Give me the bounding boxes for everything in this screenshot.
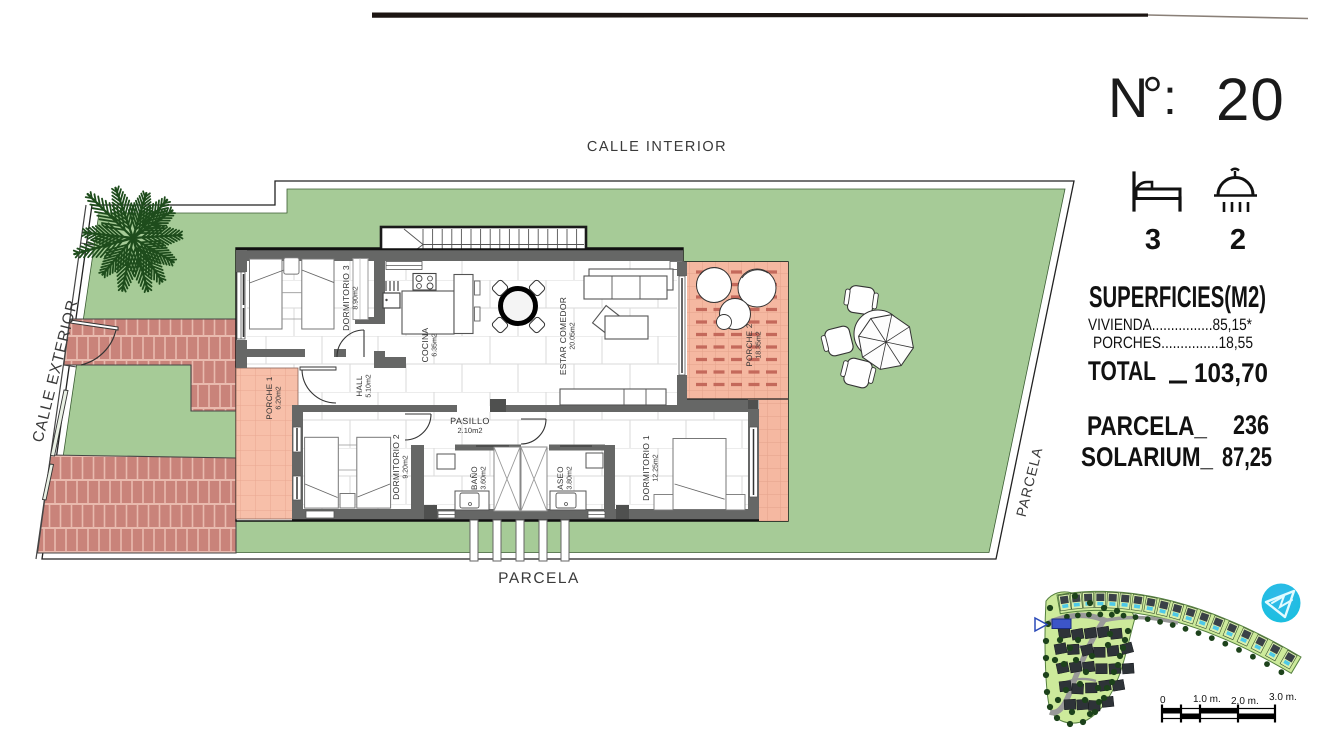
svg-text:236: 236 <box>1233 410 1269 440</box>
svg-text:CALLE INTERIOR: CALLE INTERIOR <box>587 139 727 155</box>
svg-text:3.0 m.: 3.0 m. <box>1269 692 1297 703</box>
svg-text:6.35m2: 6.35m2 <box>432 333 439 356</box>
svg-text:PARCELA_: PARCELA_ <box>1087 411 1208 441</box>
svg-text:0: 0 <box>1160 695 1166 706</box>
svg-text:87,25: 87,25 <box>1222 442 1272 472</box>
svg-text:3.80m2: 3.80m2 <box>567 466 574 489</box>
svg-text:SOLARIUM_: SOLARIUM_ <box>1081 442 1214 472</box>
svg-text:DORMITORIO 3: DORMITORIO 3 <box>341 265 351 331</box>
svg-text:ESTAR COMEDOR: ESTAR COMEDOR <box>558 297 568 375</box>
svg-text:BAÑO: BAÑO <box>469 466 479 490</box>
svg-text:2.0 m.: 2.0 m. <box>1231 696 1259 707</box>
svg-text:ASEO: ASEO <box>556 466 565 489</box>
svg-text:N: N <box>1108 66 1148 129</box>
svg-text:9.20m2: 9.20m2 <box>403 455 410 478</box>
svg-text:PASILLO: PASILLO <box>450 416 490 426</box>
svg-text:PORCHES...............18,55: PORCHES...............18,55 <box>1093 334 1253 352</box>
svg-text:103,70: 103,70 <box>1194 358 1268 388</box>
svg-text:20: 20 <box>1216 66 1285 133</box>
svg-text:COCINA: COCINA <box>420 328 430 363</box>
svg-text:2.10m2: 2.10m2 <box>457 426 482 435</box>
svg-text::: : <box>1163 69 1177 125</box>
svg-text:PORCHE 1: PORCHE 1 <box>265 376 274 420</box>
svg-text:DORMITORIO 1: DORMITORIO 1 <box>641 435 651 501</box>
svg-text:2: 2 <box>1230 224 1246 256</box>
svg-text:5.10m2: 5.10m2 <box>366 374 373 397</box>
svg-text:12.25m2: 12.25m2 <box>653 454 660 481</box>
svg-text:DORMITORIO 2: DORMITORIO 2 <box>391 434 401 500</box>
svg-text:PARCELA: PARCELA <box>498 570 580 587</box>
svg-text:3: 3 <box>1145 224 1161 256</box>
svg-text:HALL: HALL <box>355 375 364 396</box>
svg-text:SUPERFICIES(M2): SUPERFICIES(M2) <box>1089 281 1266 314</box>
svg-text:8.90m2: 8.90m2 <box>353 286 360 309</box>
svg-text:3.60m2: 3.60m2 <box>481 466 488 489</box>
svg-text:PORCHE 2: PORCHE 2 <box>745 323 754 367</box>
svg-text:TOTAL: TOTAL <box>1088 356 1156 386</box>
svg-text:VIVIENDA................85,15*: VIVIENDA................85,15* <box>1088 316 1252 334</box>
svg-text:6.20m2: 6.20m2 <box>276 386 283 409</box>
svg-text:20.05m2: 20.05m2 <box>570 322 577 349</box>
svg-text:1.0 m.: 1.0 m. <box>1193 694 1221 705</box>
svg-text:18.35m2: 18.35m2 <box>756 331 763 358</box>
